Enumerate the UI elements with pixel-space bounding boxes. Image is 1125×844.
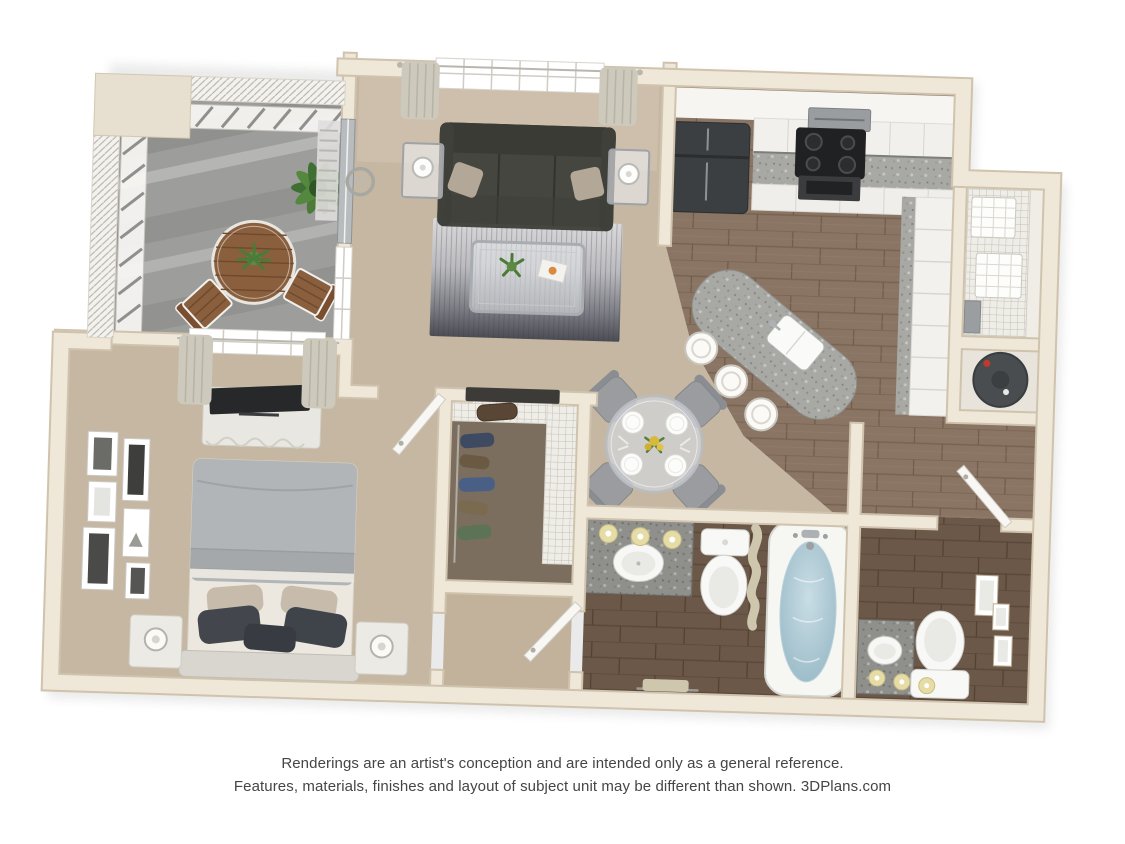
drawer-bank	[895, 197, 954, 417]
end-table-left	[402, 143, 444, 198]
balcony-corner-wall	[94, 73, 192, 138]
bed	[179, 458, 366, 682]
bathtub	[764, 521, 851, 697]
disclaimer-line-1: Renderings are an artist's conception an…	[0, 752, 1125, 775]
throw-pillow-right	[570, 166, 606, 202]
duffel-bag	[477, 403, 518, 422]
tv	[209, 385, 310, 415]
headboard	[179, 650, 360, 682]
refrigerator	[670, 121, 751, 213]
sofa	[437, 122, 616, 231]
closet-opening-header	[465, 387, 559, 404]
screen-wall-north	[189, 76, 346, 105]
pillow-dark-center	[243, 623, 297, 653]
floor-plan-page: Renderings are an artist's conception an…	[0, 0, 1125, 844]
nightstand-right	[355, 622, 409, 676]
pantry-appliance	[964, 301, 981, 333]
vertical-blinds	[315, 120, 340, 221]
toilet	[699, 529, 750, 616]
end-table-right	[608, 149, 650, 204]
utility-closet	[973, 352, 1029, 408]
pantry	[964, 189, 1031, 337]
floor-plan-rendering	[0, 0, 1125, 844]
living-room	[397, 121, 650, 343]
nightstand-left	[129, 615, 183, 669]
range	[794, 127, 866, 201]
side-window	[333, 247, 352, 339]
living-window	[435, 58, 604, 93]
disclaimer-line-2: Features, materials, finishes and layout…	[0, 775, 1125, 798]
coffee-table	[470, 241, 584, 314]
disclaimer: Renderings are an artist's conception an…	[0, 752, 1125, 798]
hall-carpet	[442, 589, 572, 693]
plan-group	[48, 46, 1070, 729]
